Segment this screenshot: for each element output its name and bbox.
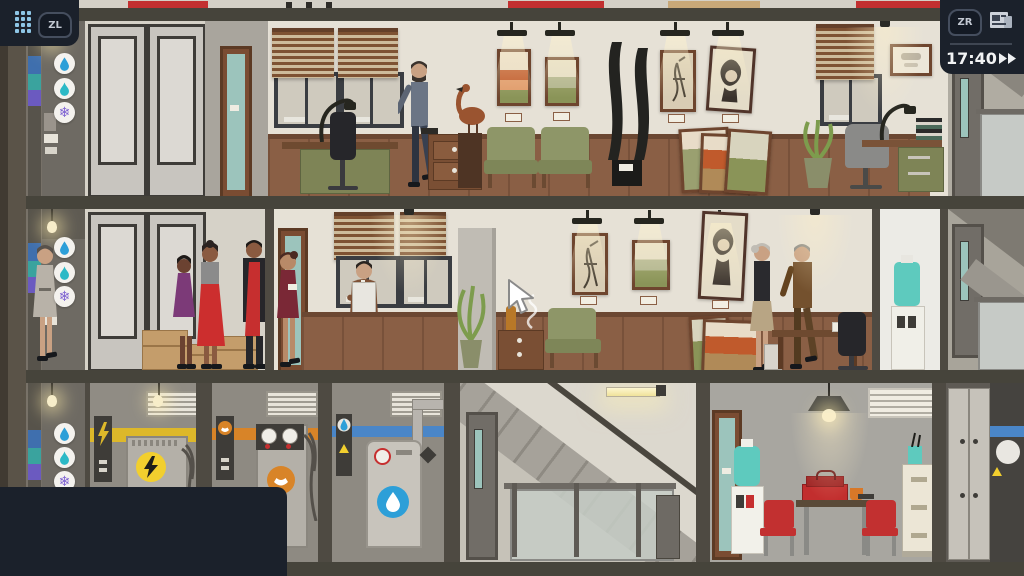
fluorescent-light [606, 387, 660, 397]
gauge-dial [996, 440, 1020, 464]
elevator-door[interactable] [88, 24, 147, 198]
upper-floor-chair [128, 1, 208, 8]
book-stack [916, 118, 942, 140]
armchair-1-legs [488, 174, 492, 188]
room-divider [444, 383, 460, 562]
gauge [282, 428, 298, 444]
painting-jazz[interactable] [660, 50, 696, 112]
gauge-panel [256, 424, 304, 450]
office-chair-mid[interactable] [838, 312, 866, 356]
track-light [497, 30, 527, 36]
hanging-bulb [153, 395, 163, 407]
shaft-tag2 [45, 147, 57, 154]
right-office-chair-base [850, 185, 882, 189]
reception-blinds-2 [400, 212, 446, 260]
electrical-sign [94, 416, 112, 482]
potted-plant [798, 112, 838, 164]
track-light [634, 218, 664, 224]
side-cabinet-knob2 [452, 168, 457, 173]
balustrade-glass [510, 489, 674, 561]
lamp-cord [828, 383, 830, 398]
water-icon-top[interactable] [54, 53, 75, 74]
filing-cabinet-base [902, 551, 932, 557]
water-icon-base[interactable] [54, 423, 75, 444]
floor-slab [26, 370, 1024, 383]
balustrade-post [512, 483, 517, 557]
pens [908, 431, 924, 447]
pen-cup [908, 446, 922, 464]
side-cabinet-knob1 [452, 147, 457, 152]
stairwell-mid-floor [948, 209, 1024, 370]
ac-icon-mid[interactable]: ❄ [54, 286, 75, 307]
mouse-cursor [504, 278, 538, 316]
phone-sign [216, 416, 234, 480]
leaning-painting-3[interactable] [724, 129, 772, 196]
armchair-1-seat [484, 160, 538, 174]
office-chair-top-post [340, 160, 345, 186]
riser-ac-top [28, 90, 41, 106]
abstract-sculpture[interactable] [598, 42, 652, 188]
red-chair-back[interactable] [866, 500, 896, 528]
track-light [712, 30, 744, 36]
sign-tag [221, 458, 229, 462]
ceiling-light [404, 209, 414, 215]
gas-icon-mid[interactable] [54, 262, 75, 283]
ac-louvre [868, 388, 932, 418]
drawer-handle [911, 477, 927, 482]
water-pipe-h [412, 399, 444, 410]
certificate-frame [890, 44, 932, 76]
cabinet-vent [132, 440, 180, 446]
drinks-cabinet-knobs [517, 338, 522, 343]
cooler-bottle [734, 446, 760, 486]
painting-portrait[interactable] [706, 45, 756, 113]
basement-stairwell[interactable] [460, 383, 696, 562]
flamingo-statue[interactable] [452, 80, 488, 134]
armchair-mid-legs [550, 353, 554, 368]
ceiling-vent [266, 391, 318, 417]
stairwell-door[interactable] [466, 412, 498, 560]
newspaper-icon[interactable] [988, 9, 1014, 32]
stair-bin [656, 495, 680, 559]
gallery-blinds-2 [338, 28, 398, 78]
gauge [261, 428, 277, 444]
water-icon-mid[interactable] [54, 237, 75, 258]
painting-plaque [668, 114, 685, 123]
water-cooler-taps [897, 316, 905, 328]
riser-gas-base [28, 448, 41, 464]
drinks-cabinet[interactable] [498, 330, 544, 370]
stair-glass-panel [980, 113, 1024, 196]
water-badge [377, 486, 409, 518]
zl-label: ZL [48, 20, 62, 31]
riser-gas-top [28, 74, 41, 90]
elevator-door[interactable] [88, 212, 147, 372]
cabinet-door [948, 388, 969, 560]
knob [265, 444, 270, 449]
plant-pot [804, 158, 832, 188]
office-door-top[interactable] [220, 46, 252, 199]
flamingo-pedestal [458, 133, 482, 188]
track-light [660, 30, 690, 36]
painting-plaque [722, 114, 739, 123]
red-chair-legs [866, 536, 870, 556]
stair-glass-rail [976, 109, 1024, 114]
red-chair-back[interactable] [764, 500, 794, 528]
upper-floor-crate [668, 1, 760, 8]
office-chair-top-base [328, 186, 358, 190]
painting-portrait-2[interactable] [698, 211, 749, 301]
cabinet-handles [960, 439, 965, 444]
person-shaft-woman [28, 244, 62, 366]
hud-top-right: ZR 17:40 [940, 0, 1024, 74]
cables [302, 431, 318, 521]
elevator-door[interactable] [147, 24, 206, 198]
zr-button[interactable]: ZR [948, 9, 982, 36]
person-woman-walking [270, 250, 304, 372]
gas-icon-top[interactable] [54, 78, 75, 99]
reception-window-2 [400, 256, 452, 308]
red-chair-seat [862, 528, 898, 536]
far-right-utility [990, 383, 1024, 562]
boiler[interactable] [366, 440, 422, 548]
ac-icon-top[interactable]: ❄ [54, 102, 75, 123]
painting-hills[interactable] [545, 57, 579, 106]
zr-label: ZR [958, 17, 973, 28]
painting-landscape[interactable] [632, 240, 670, 290]
painting-plaque [640, 296, 657, 305]
ceiling-light [810, 209, 820, 215]
red-chair-seat [760, 528, 796, 536]
office-plant [452, 272, 490, 344]
right-desk-top[interactable] [862, 140, 942, 147]
build-menu-grid-icon[interactable] [15, 11, 19, 15]
toolbox-handle [816, 470, 836, 480]
hud-divider [950, 43, 1012, 45]
right-office-blinds [816, 24, 874, 80]
track-light [545, 30, 575, 36]
armchair-2-legs [542, 174, 546, 188]
painting-plaque [712, 300, 729, 309]
fluorescent-mount [656, 385, 666, 396]
shaft-bulb-base [47, 395, 57, 407]
water-cooler-cap [901, 255, 913, 263]
break-table-legs [804, 507, 809, 555]
track-light [572, 218, 602, 224]
riser-water-base [28, 430, 41, 448]
warning-triangle [339, 444, 349, 453]
armchair-2-seat [538, 160, 592, 174]
room-divider [318, 383, 332, 562]
office-chair-top[interactable] [330, 112, 356, 160]
bolt-badge [136, 452, 166, 482]
right-desk-handles [908, 156, 930, 159]
person-brown-suit-man [780, 242, 820, 378]
game-screen: ❄ ❄ ❄ [0, 0, 1024, 576]
basement-cabinet[interactable] [946, 383, 990, 562]
armchair-mid-seat [545, 339, 601, 353]
riser-ac-base [28, 464, 41, 480]
water-stripe [990, 426, 1024, 437]
upper-floor-chair2 [508, 1, 604, 8]
riser-water-top [28, 56, 41, 74]
painting-plaque [553, 112, 570, 121]
right-desk-cabinet [898, 147, 944, 192]
fast-forward-icon[interactable] [998, 52, 1018, 65]
reception-blinds-1 [334, 212, 394, 260]
right-desk-mid-legs [778, 337, 783, 369]
filing-cabinet[interactable] [902, 464, 932, 556]
water-room[interactable] [332, 383, 444, 562]
break-table-top[interactable] [796, 500, 874, 507]
sign-tag [99, 460, 107, 464]
warning-triangle [992, 467, 1002, 476]
desk-lamp-right [874, 94, 916, 142]
floor-slab [26, 196, 1024, 209]
red-chair-legs [764, 536, 768, 556]
ceiling-light [880, 21, 890, 27]
painting-mountains[interactable] [497, 49, 531, 106]
clock-time[interactable]: 17:40 [946, 49, 997, 68]
lamp-bulb [822, 409, 836, 422]
wall-divider [872, 209, 880, 370]
shaft-bulb-mid [47, 221, 57, 233]
boiler-vent [396, 450, 412, 455]
painting-plaque [505, 113, 522, 122]
person-group-lobby [170, 238, 278, 372]
pressure-gauge [374, 448, 391, 465]
cooler-cap [741, 439, 753, 447]
hud-stats-panel: ★ 115 10 32 $ 943653 - 3490 / day 10107 … [0, 487, 287, 576]
zl-button[interactable]: ZL [38, 12, 72, 38]
stair-glass-rail [974, 297, 1024, 302]
water-sign [336, 414, 352, 476]
painting-trumpeter[interactable] [572, 233, 608, 295]
stair-glass-panel [978, 301, 1024, 370]
break-room[interactable] [710, 383, 932, 562]
hud-top-left: ZL [0, 0, 79, 46]
room-divider [696, 383, 710, 562]
cabinet-door [969, 388, 990, 560]
shaft-tag1 [44, 134, 58, 143]
gas-icon-base[interactable] [54, 447, 75, 468]
room-divider [932, 383, 946, 562]
table-item [858, 494, 874, 499]
painting-plaque [580, 296, 597, 305]
wall-divider [940, 209, 948, 370]
cooler-taps [736, 495, 744, 508]
water-cooler-bottle [894, 262, 920, 306]
gallery-blinds-1 [272, 28, 334, 78]
right-office-chair-post [863, 168, 868, 186]
floor-slab [26, 8, 1024, 21]
